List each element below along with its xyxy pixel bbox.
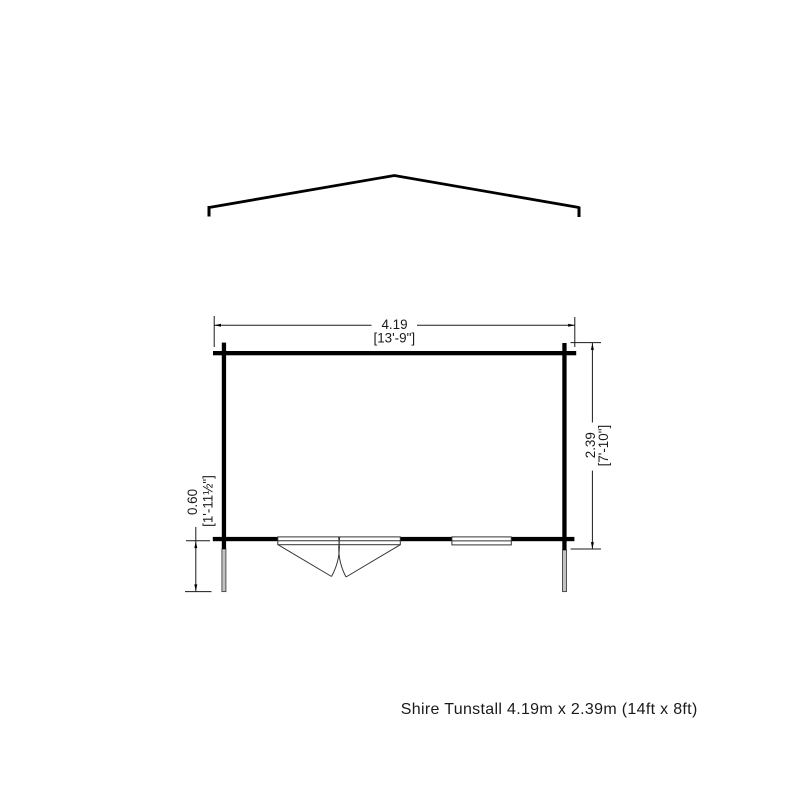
svg-text:0.60: 0.60 (185, 489, 200, 515)
svg-text:[13'-9"]: [13'-9"] (374, 331, 416, 346)
svg-text:Shire Tunstall 4.19m x 2.39m (: Shire Tunstall 4.19m x 2.39m (14ft x 8ft… (401, 701, 698, 718)
svg-text:[7'-10"]: [7'-10"] (596, 425, 611, 467)
svg-text:[1'-11½"]: [1'-11½"] (200, 475, 215, 527)
